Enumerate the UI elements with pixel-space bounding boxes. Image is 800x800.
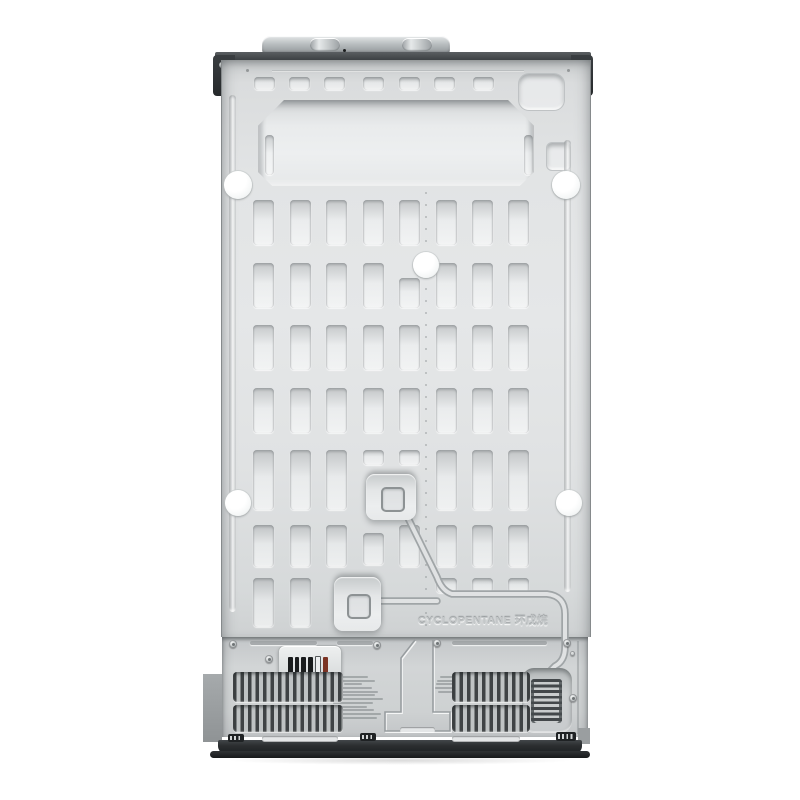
base-connector <box>360 733 376 741</box>
refrigerant-embossed-label: CYCLOPENTANE 环戊烷 <box>418 613 578 629</box>
cover-screw <box>229 640 237 648</box>
foam-plug <box>552 171 580 199</box>
rating-plate-bar <box>315 656 322 674</box>
foam-plug <box>224 171 252 199</box>
panel-pinhole <box>246 69 249 72</box>
cover-screw <box>569 694 577 702</box>
compressor-grille <box>233 705 343 732</box>
back-panel: CYCLOPENTANE 环戊烷 <box>221 60 591 637</box>
screw-slot-mark <box>268 658 271 661</box>
cover-screw <box>265 655 273 663</box>
foam-plug <box>225 490 251 516</box>
base-edge-slot <box>400 727 435 732</box>
cover-screw <box>433 639 441 647</box>
cover-top-slot <box>452 641 547 645</box>
product-photo-stage: CYCLOPENTANE 环戊烷 <box>0 0 800 800</box>
cover-hole <box>570 651 575 656</box>
left-side-wall <box>203 674 222 742</box>
screw-slot-mark <box>232 643 235 646</box>
fine-print-line <box>339 706 367 708</box>
access-pad-lower-hole <box>347 594 371 619</box>
cover-screw <box>373 641 381 649</box>
screw-slot-mark <box>572 697 575 700</box>
compressor-grille <box>233 672 343 702</box>
rating-plate-bar <box>288 657 293 673</box>
access-pad-upper-hole <box>381 487 405 512</box>
cover-top-slot <box>250 641 317 645</box>
compressor-cover <box>222 637 588 737</box>
rating-plate-bar <box>323 657 328 673</box>
base-edge-slot <box>262 736 338 741</box>
rating-plate-bar <box>295 657 300 673</box>
cover-screw <box>563 639 571 647</box>
panel-pinhole <box>567 69 570 72</box>
hinge-bump-left <box>310 38 340 51</box>
base-edge-slot <box>452 736 520 741</box>
coolant-tube-svg <box>222 60 590 637</box>
cover-top-slot <box>337 641 373 645</box>
fine-print-line <box>333 702 373 704</box>
drain-vent-slats <box>531 679 562 723</box>
screw-slot-mark <box>566 642 569 645</box>
access-pad-upper <box>366 474 416 520</box>
rating-plate-bar <box>308 657 313 673</box>
base-connector <box>228 734 244 742</box>
foam-plug <box>556 490 582 516</box>
rating-plate-bars <box>288 656 334 673</box>
hinge-bump-right <box>402 38 432 51</box>
compressor-grille <box>452 705 530 732</box>
access-pad-lower <box>334 577 381 631</box>
compressor-grille <box>452 672 530 702</box>
rating-plate-bar <box>301 657 306 673</box>
base-lip <box>210 751 590 758</box>
fine-print-line <box>344 683 362 685</box>
screw-slot-mark <box>376 644 379 647</box>
screw-slot-mark <box>436 642 439 645</box>
base-connector <box>556 732 576 741</box>
foam-plug <box>413 252 439 278</box>
